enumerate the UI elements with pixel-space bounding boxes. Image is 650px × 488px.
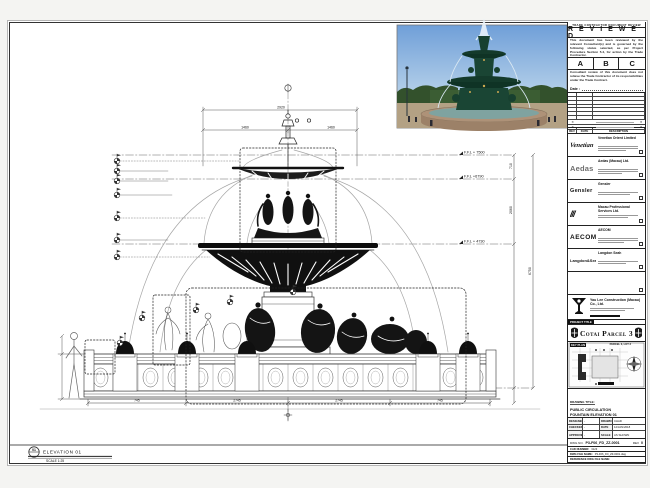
revision-table-header: REV DATE DESCRIPTION <box>568 127 645 134</box>
consultant-name: Venetian Orient Limited <box>598 137 644 141</box>
yau-lee-logo-icon <box>570 297 588 317</box>
consultant-name: Gensler <box>598 183 644 187</box>
stamp-paragraph-2: Consultant review of this document does … <box>568 70 645 84</box>
contractor-address <box>590 308 634 312</box>
svg-text:2060: 2060 <box>509 206 513 214</box>
key-plan-label: KEY PLAN <box>570 343 586 347</box>
fountain-photo <box>397 18 567 131</box>
contractor-bar <box>590 315 620 317</box>
svg-text:1460: 1460 <box>241 126 249 130</box>
status-option-b[interactable]: B <box>594 58 620 69</box>
status-option-a[interactable]: A <box>568 58 594 69</box>
file-name-value: P3-F06_FD_ZZ-0001.dwg <box>595 453 626 456</box>
consultant-address <box>598 146 638 153</box>
venetian-logo: Venetian <box>569 138 597 152</box>
consultant-checkbox[interactable] <box>639 242 643 246</box>
svg-text:2745: 2745 <box>233 399 241 403</box>
rev-value: 0 <box>641 441 643 445</box>
consultant-row: Langdon&Seah Langdon Seah <box>568 249 645 272</box>
consultant-row: Aedas Aedas (Macau) Ltd. <box>568 157 645 180</box>
consultant-name: Langdon Seah <box>598 252 644 256</box>
macau-professional-services-logo: /// <box>570 207 596 221</box>
consultant-row: AECOM AECOM <box>568 226 645 249</box>
consultant-checkbox[interactable] <box>639 150 643 154</box>
rev-label: REV <box>633 441 639 445</box>
dwg-no-value: P3-F06_FD_ZZ-0001 <box>586 441 620 445</box>
svg-text:2745: 2745 <box>335 399 343 403</box>
field-value: 12/JAN/2018 <box>613 425 645 431</box>
review-stamp: TRADE CONTRACTOR DOCUMENT REVIEW R E V I… <box>568 22 645 134</box>
svg-text:745: 745 <box>134 399 140 403</box>
svg-text:2920: 2920 <box>277 106 285 110</box>
consultant-checkbox[interactable] <box>639 219 643 223</box>
revision-mark-icon: ✕ <box>637 120 645 124</box>
revision-table <box>568 92 645 120</box>
field-value: - <box>583 431 600 438</box>
reviewed-title: R E V I E W E D <box>568 28 645 38</box>
key-plan: KEY PLAN PARCEL 3, LOT 3 <box>568 342 645 389</box>
level-label: F.F.L + 7500 <box>464 150 485 154</box>
field-label: SCALE <box>600 431 613 438</box>
field-label: DRAWN <box>600 418 613 424</box>
dwg-number-row: DWG NO. P3-F06_FD_ZZ-0001 REV 0 <box>568 439 645 447</box>
drawing-title-block: DRAWING TITLE: PUBLIC CIRCULATION FOUNTA… <box>568 389 645 418</box>
stamp-date-row: Date : <box>568 84 645 92</box>
svg-text:710: 710 <box>509 163 513 169</box>
status-option-c[interactable]: C <box>619 58 645 69</box>
ornament-icon <box>570 327 579 340</box>
svg-text:1460: 1460 <box>327 126 335 130</box>
project-title-label: PROJECT TITLE <box>568 320 594 324</box>
cad-number-label: CAD NUMBER: <box>570 448 589 451</box>
consultant-address <box>598 238 638 245</box>
consultant-row: /// Macau Professional Services Ltd. <box>568 203 645 226</box>
consultant-row: Gensler Gensler <box>568 180 645 203</box>
consultant-address <box>598 261 638 265</box>
revision-issue-rows: ✕✕ ✕✕ <box>568 120 645 127</box>
consultant-checkbox[interactable] <box>639 288 643 292</box>
consultant-address <box>598 169 638 176</box>
consultant-checkbox[interactable] <box>639 265 643 269</box>
consultant-address <box>598 192 638 196</box>
cad-number-value: 3123 <box>591 448 597 451</box>
title-block-column: TRADE CONTRACTOR DOCUMENT REVIEW R E V I… <box>567 22 646 463</box>
consultant-row-empty <box>568 272 645 295</box>
drawing-sheet: F.F.L + 7500 F.F.L +6790 F.F.L + 4730 F.… <box>0 0 650 488</box>
project-title: Cotai Parcel 3 <box>580 329 633 338</box>
contractor-name: Yau Lee Construction (Macau) Co., Ltd. <box>590 298 642 306</box>
review-status-options: A B C <box>568 57 645 70</box>
date-label: Date : <box>570 87 580 91</box>
consultant-checkbox[interactable] <box>639 173 643 177</box>
stamp-paragraph-1: This document has been reviewed by the r… <box>568 38 645 57</box>
field-label: DESIGNED <box>568 418 583 424</box>
consultant-name: Macau Professional Services Ltd. <box>598 206 644 213</box>
elevation-label: ELEVATION 01 <box>43 450 82 455</box>
elevation-bubble: 01 <box>32 448 36 452</box>
field-label: APPROVED <box>568 431 583 438</box>
gensler-logo: Gensler <box>570 184 596 198</box>
field-label: DATE <box>600 425 613 431</box>
key-plan-sublabel: PARCEL 3, LOT 3 <box>610 343 631 346</box>
level-label: F.F.L + 4730 <box>464 239 485 243</box>
reference-label: REFERENCE DWG FILE NAME: <box>570 458 610 461</box>
field-value: AS SHOWN <box>613 431 645 438</box>
level-label: F.F.L +6790 <box>464 174 484 178</box>
consultant-name: AECOM <box>598 229 644 233</box>
contractor-block: Yau Lee Construction (Macau) Co., Ltd. <box>568 295 645 320</box>
project-title-band: Cotai Parcel 3 <box>568 325 645 342</box>
consultant-address <box>598 215 638 219</box>
field-label: CHECKED <box>568 425 583 431</box>
consultant-checkbox[interactable] <box>639 196 643 200</box>
date-blank-line[interactable] <box>582 88 643 91</box>
key-plan-map <box>568 342 645 388</box>
file-name-row: DWG FILE NAME: P3-F06_FD_ZZ-0001.dwg <box>568 452 645 457</box>
elevation-scale: SCALE 1:25 <box>46 459 64 463</box>
consultant-name: Aedas (Macau) Ltd. <box>598 160 644 164</box>
drawing-title-label: DRAWING TITLE: <box>570 400 595 405</box>
consultant-row: Venetian Venetian Orient Limited <box>568 134 645 157</box>
revision-mark-icon: ✕ <box>568 120 577 124</box>
aedas-logo: Aedas <box>570 161 596 175</box>
field-value: - <box>583 418 600 424</box>
reference-row: REFERENCE DWG FILE NAME: <box>568 457 645 462</box>
svg-text:6750: 6750 <box>528 267 532 275</box>
field-value: - <box>583 425 600 431</box>
aecom-logo: AECOM <box>570 230 596 244</box>
ornament-icon <box>634 327 643 340</box>
svg-text:745: 745 <box>437 399 443 403</box>
dwg-no-label: DWG NO. <box>570 441 584 445</box>
title-block-fields: DESIGNED - DRAWN CHAD CHECKED - DATE 12/… <box>568 418 645 439</box>
field-value: CHAD <box>613 418 645 424</box>
langdon-seah-logo: Langdon&Seah <box>570 253 596 267</box>
file-name-label: DWG FILE NAME: <box>570 453 593 456</box>
